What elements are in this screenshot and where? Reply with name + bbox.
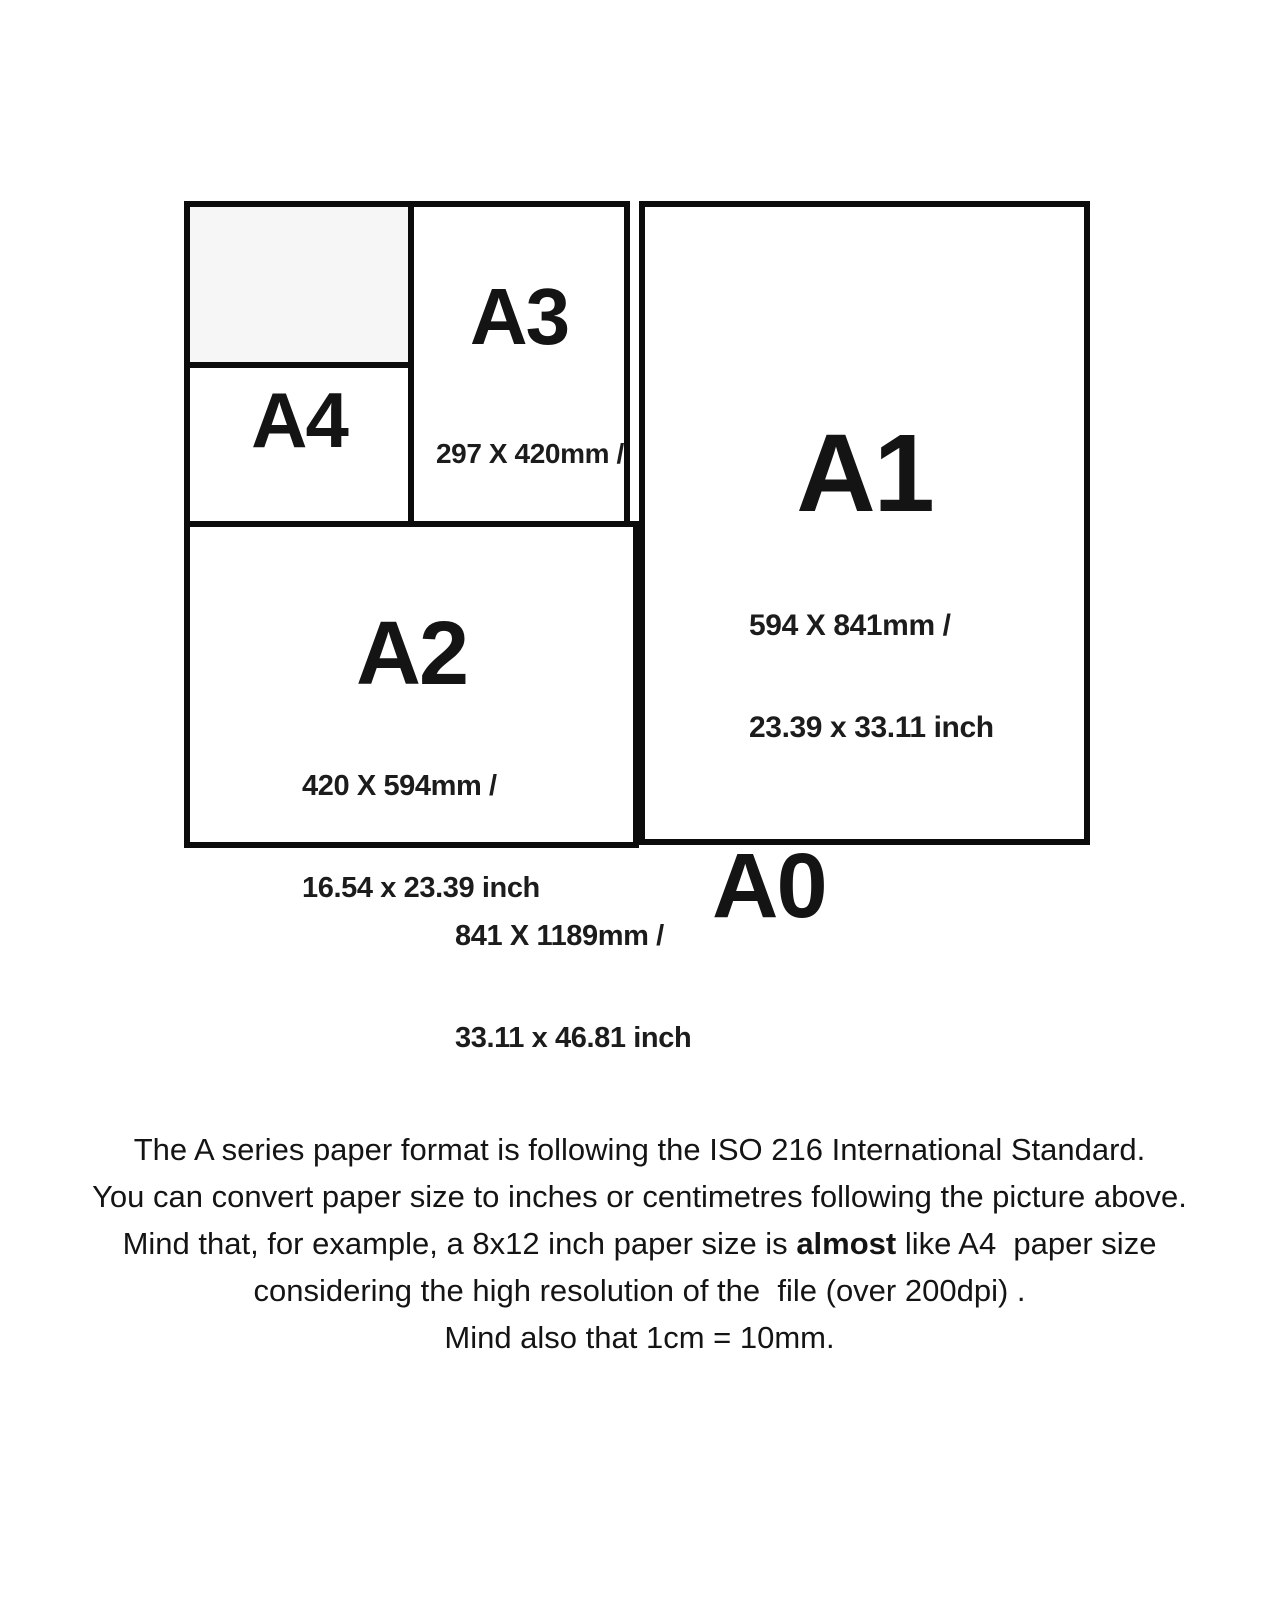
paper-box-a2: A2 420 X 594mm / 16.54 x 23.39 inch: [184, 521, 639, 848]
paper-label-a4: A4: [190, 381, 408, 459]
paper-box-a5-placeholder: [184, 201, 414, 368]
paper-dims-a2-mm: 420 X 594mm /: [302, 769, 540, 803]
paper-dims-a1-inch: 23.39 x 33.11 inch: [749, 711, 994, 745]
paper-dims-a0: 841 X 1189mm / 33.11 x 46.81 inch: [455, 851, 691, 1089]
caption-line-3: Mind that, for example, a 8x12 inch pape…: [0, 1220, 1279, 1267]
caption-line-5: Mind also that 1cm = 10mm.: [0, 1314, 1279, 1361]
paper-label-a3: A3: [414, 277, 624, 357]
paper-dims-a1: 594 X 841mm / 23.39 x 33.11 inch: [749, 541, 994, 813]
caption-text: The A series paper format is following t…: [0, 1126, 1279, 1361]
paper-dims-a1-mm: 594 X 841mm /: [749, 609, 994, 643]
paper-label-a2: A2: [190, 609, 633, 699]
paper-box-a4: A4 210 X 297mm / 8.27 x 11.69 inch: [184, 362, 414, 527]
caption-line-3-after: like A4 paper size: [896, 1226, 1156, 1261]
paper-box-a1: A1 594 X 841mm / 23.39 x 33.11 inch: [639, 201, 1090, 845]
caption-line-1: The A series paper format is following t…: [0, 1126, 1279, 1173]
caption-line-3-before: Mind that, for example, a 8x12 inch pape…: [123, 1226, 797, 1261]
caption-line-3-bold-word: almost: [796, 1226, 896, 1261]
caption-line-4: considering the high resolution of the f…: [0, 1267, 1279, 1314]
paper-dims-a3-mm: 297 X 420mm /: [436, 437, 664, 471]
paper-label-a1: A1: [645, 419, 1084, 529]
paper-label-a0: A0: [712, 840, 832, 932]
paper-box-a3: A3 297 X 420mm / 11.69 x 16.54 inch: [408, 201, 630, 527]
caption-line-2: You can convert paper size to inches or …: [0, 1173, 1279, 1220]
paper-dims-a0-mm: 841 X 1189mm /: [455, 919, 691, 953]
paper-dims-a0-inch: 33.11 x 46.81 inch: [455, 1021, 691, 1055]
paper-size-diagram: A4 210 X 297mm / 8.27 x 11.69 inch A3 29…: [184, 201, 1090, 847]
